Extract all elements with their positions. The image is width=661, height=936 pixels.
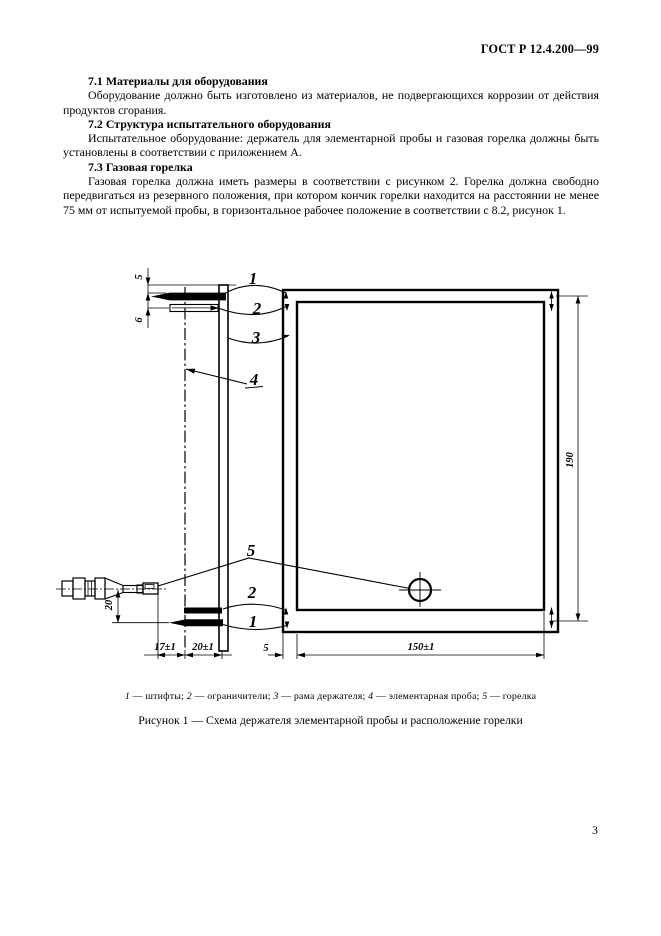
holder-opening — [297, 302, 544, 610]
section-7-2-heading: 7.2 Структура испытательного оборудовани… — [63, 117, 599, 131]
leader-stopper-bottom — [223, 604, 286, 610]
page: { "document": { "code": "ГОСТ Р 12.4.200… — [0, 0, 661, 936]
callout-pin-top: 1 — [249, 269, 258, 288]
stopper-bottom — [184, 608, 222, 614]
side-frame-rail — [219, 285, 228, 651]
callout-numbers: 1 2 3 4 5 2 1 — [247, 269, 262, 631]
dim-specimen-to-frame: 20±1 — [191, 642, 214, 653]
page-number: 3 — [585, 825, 605, 837]
dim-burner-axis-height: 20 — [104, 599, 115, 611]
front-view-holder — [283, 290, 558, 632]
callout-frame: 3 — [251, 328, 261, 347]
dim-frame-inset: 5 — [263, 643, 268, 654]
section-7-2-body: Испытательное оборудование: держатель дл… — [63, 131, 599, 160]
section-7-3-heading: 7.3 Газовая горелка — [63, 160, 599, 174]
callout-stopper-top: 2 — [252, 299, 262, 318]
gas-burner — [56, 578, 166, 599]
pin-top — [151, 293, 226, 301]
dim-opening-height: 190 — [565, 451, 576, 468]
pin-bottom — [169, 619, 223, 626]
figure-1-drawing: 5 6 20 190 17±1 20±1 5 150±1 1 2 3 4 5 2… — [0, 255, 661, 665]
section-7-1-body: Оборудование должно быть изготовлено из … — [63, 88, 599, 117]
figure-caption: Рисунок 1 — Схема держателя элементарной… — [0, 714, 661, 727]
leader-specimen — [186, 369, 247, 384]
body-text: 7.1 Материалы для оборудования Оборудова… — [63, 74, 599, 217]
section-7-3-body: Газовая горелка должна иметь размеры в с… — [63, 174, 599, 217]
document-code: ГОСТ Р 12.4.200—99 — [481, 42, 599, 57]
callout-burner: 5 — [247, 541, 256, 560]
dimension-labels: 5 6 20 190 17±1 20±1 5 150±1 — [104, 274, 576, 654]
holder-outer-frame — [283, 290, 558, 632]
section-7-1-heading: 7.1 Материалы для оборудования — [63, 74, 599, 88]
side-view — [112, 285, 228, 651]
dim-opening-width: 150±1 — [408, 642, 435, 653]
stopper-top — [170, 305, 219, 312]
dim-pin-edge-offset: 5 — [134, 274, 145, 279]
callout-stopper-bottom: 2 — [247, 583, 257, 602]
dim-stop-pin-gap: 6 — [134, 317, 145, 323]
dimension-lines — [118, 268, 588, 659]
callout-pin-bottom: 1 — [249, 612, 258, 631]
callout-specimen: 4 — [249, 370, 259, 389]
burner-position-crosshair — [399, 572, 441, 607]
figure-legend: 1 — штифты; 2 — ограничители; 3 — рама д… — [0, 691, 661, 702]
dim-tip-to-specimen: 17±1 — [154, 642, 176, 653]
